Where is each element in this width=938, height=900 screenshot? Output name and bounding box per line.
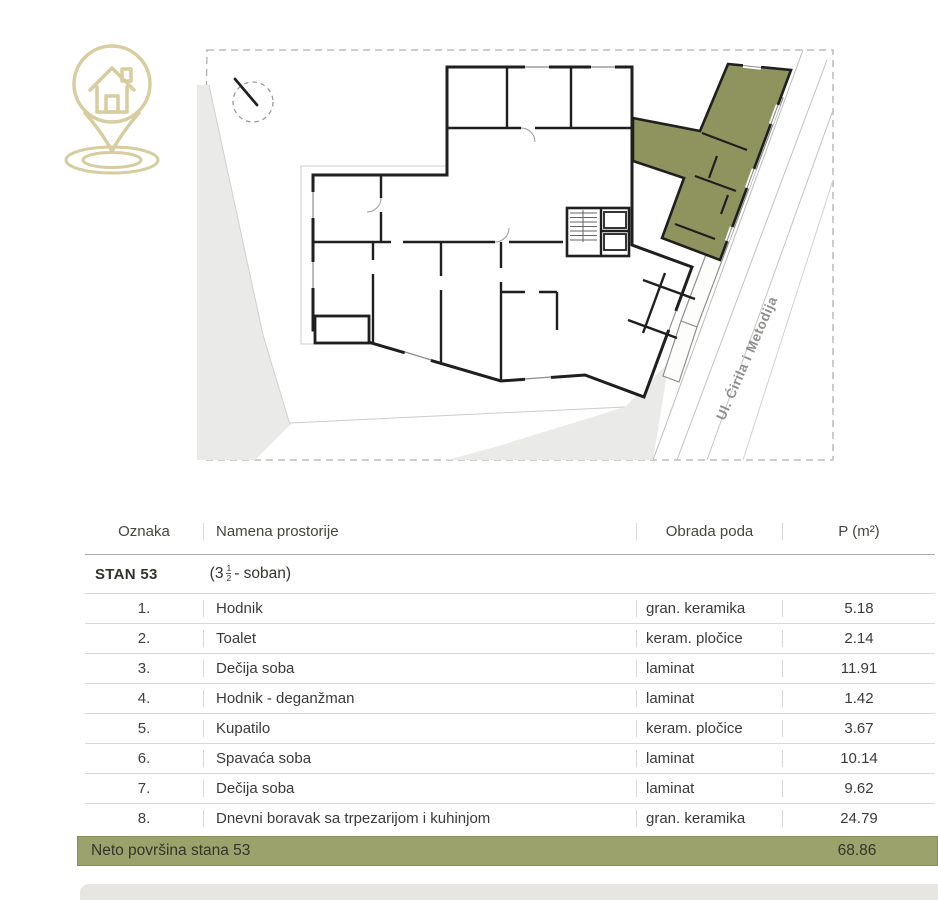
- stairwell: [567, 208, 629, 256]
- room-name: Toalet: [203, 630, 636, 647]
- net-area-label: Neto površina stana 53: [78, 842, 777, 860]
- room-schedule-table: Oznaka Namena prostorije Obrada poda P (…: [85, 508, 935, 866]
- apartment-label: STAN 53: [85, 566, 158, 583]
- table-row: 4. Hodnik - deganžman laminat 1.42: [85, 683, 935, 713]
- room-area: 5.18: [782, 600, 935, 617]
- row-number: 7.: [85, 780, 203, 797]
- room-name: Hodnik - deganžman: [203, 690, 636, 707]
- building-walls: [301, 67, 695, 397]
- floor-finish: laminat: [636, 690, 782, 707]
- net-area-value: 68.86: [777, 842, 937, 860]
- floor-finish: gran. keramika: [636, 600, 782, 617]
- row-number: 6.: [85, 750, 203, 767]
- row-number: 5.: [85, 720, 203, 737]
- table-row: 7. Dečija soba laminat 9.62: [85, 773, 935, 803]
- apartment-group-row: STAN 53 (3 1 2 - soban): [85, 555, 935, 593]
- room-area: 2.14: [782, 630, 935, 647]
- floor-finish: laminat: [636, 660, 782, 677]
- col-header-obrada: Obrada poda: [636, 523, 782, 540]
- floor-plan: Ul. Ćirila i Metodija: [195, 30, 855, 470]
- table-row: 8. Dnevni boravak sa trpezarijom i kuhin…: [85, 803, 935, 833]
- house-pin-logo-icon: [60, 38, 170, 180]
- net-area-total-bar: Neto površina stana 53 68.86: [77, 836, 938, 866]
- table-header-row: Oznaka Namena prostorije Obrada poda P (…: [85, 508, 935, 555]
- row-number: 8.: [85, 810, 203, 827]
- room-area: 9.62: [782, 780, 935, 797]
- room-name: Spavaća soba: [203, 750, 636, 767]
- room-area: 3.67: [782, 720, 935, 737]
- table-rows: 1. Hodnik gran. keramika 5.18 2. Toalet …: [85, 593, 935, 833]
- table-row: 5. Kupatilo keram. pločice 3.67: [85, 713, 935, 743]
- row-number: 1.: [85, 600, 203, 617]
- half-fraction: 1 2: [226, 564, 231, 582]
- floor-finish: gran. keramika: [636, 810, 782, 827]
- room-name: Dnevni boravak sa trpezarijom i kuhinjom: [203, 810, 636, 827]
- table-row: 2. Toalet keram. pločice 2.14: [85, 623, 935, 653]
- room-area: 10.14: [782, 750, 935, 767]
- room-area: 24.79: [782, 810, 935, 827]
- room-area: 11.91: [782, 660, 935, 677]
- col-header-oznaka: Oznaka: [85, 523, 203, 540]
- floor-finish: laminat: [636, 750, 782, 767]
- row-number: 2.: [85, 630, 203, 647]
- row-number: 3.: [85, 660, 203, 677]
- room-area: 1.42: [782, 690, 935, 707]
- north-arrow-icon: [233, 79, 273, 122]
- room-name: Dečija soba: [203, 780, 636, 797]
- table-row: 1. Hodnik gran. keramika 5.18: [85, 593, 935, 623]
- room-name: Dečija soba: [203, 660, 636, 677]
- room-name: Hodnik: [203, 600, 636, 617]
- row-number: 4.: [85, 690, 203, 707]
- brochure-page: Ul. Ćirila i Metodija Oznaka Namena pros…: [0, 0, 938, 900]
- floor-finish: laminat: [636, 780, 782, 797]
- table-row: 3. Dečija soba laminat 11.91: [85, 653, 935, 683]
- room-name: Kupatilo: [203, 720, 636, 737]
- col-header-namena: Namena prostorije: [203, 523, 636, 540]
- apartment-room-count: (3 1 2 - soban): [210, 565, 291, 583]
- page-bottom-strip: [80, 884, 938, 900]
- col-header-p: P (m²): [782, 523, 935, 540]
- floor-finish: keram. pločice: [636, 630, 782, 647]
- floor-finish: keram. pločice: [636, 720, 782, 737]
- street-label: Ul. Ćirila i Metodija: [713, 294, 780, 422]
- table-row: 6. Spavaća soba laminat 10.14: [85, 743, 935, 773]
